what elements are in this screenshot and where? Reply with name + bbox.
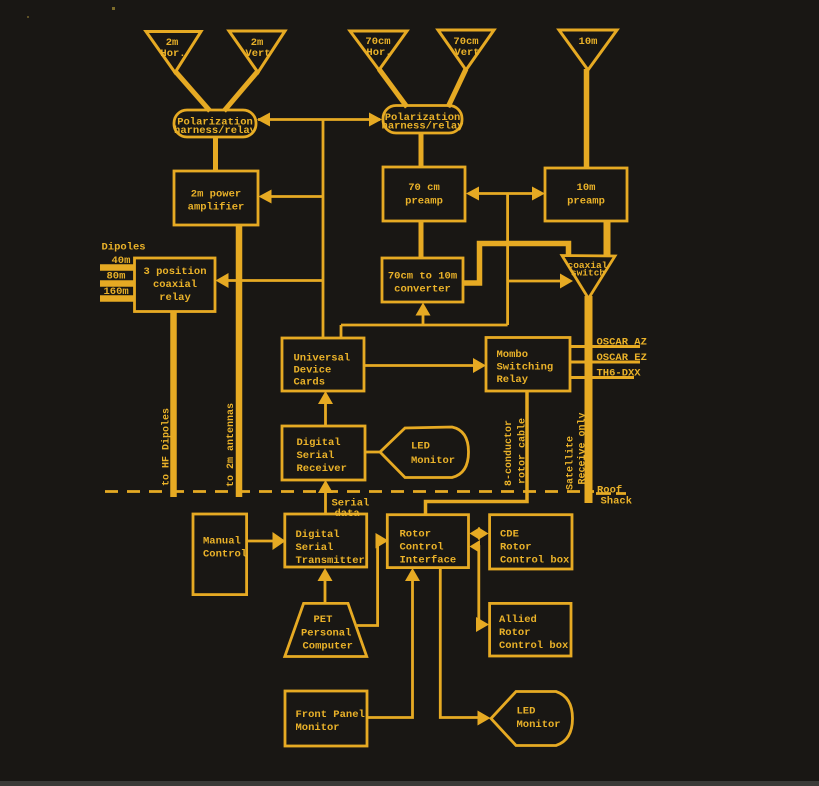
svg-text:preamp: preamp <box>405 196 443 208</box>
svg-text:Allied: Allied <box>499 614 537 626</box>
svg-text:Serial: Serial <box>296 542 334 554</box>
svg-text:Vert: Vert <box>454 47 479 59</box>
svg-text:10m: 10m <box>577 182 596 194</box>
svg-text:coaxial: coaxial <box>153 279 197 291</box>
svg-text:switch: switch <box>571 268 606 279</box>
svg-text:Digital: Digital <box>296 529 340 541</box>
svg-text:Manual: Manual <box>203 536 241 548</box>
svg-text:Hor.: Hor. <box>160 48 185 60</box>
svg-text:data: data <box>335 508 361 520</box>
svg-text:converter: converter <box>394 284 451 296</box>
svg-text:to HF Dipoles: to HF Dipoles <box>161 408 173 486</box>
svg-text:Front Panel: Front Panel <box>296 709 365 721</box>
svg-text:amplifier: amplifier <box>188 202 245 214</box>
svg-text:Device: Device <box>294 365 332 377</box>
svg-text:80m: 80m <box>107 271 126 283</box>
svg-text:Dipoles: Dipoles <box>102 242 146 254</box>
svg-text:preamp: preamp <box>567 196 605 208</box>
svg-text:Receive only: Receive only <box>577 412 589 484</box>
svg-text:Monitor: Monitor <box>517 719 561 731</box>
svg-text:relay: relay <box>159 292 191 304</box>
svg-text:Mombo: Mombo <box>497 349 529 361</box>
svg-text:Interface: Interface <box>400 555 457 567</box>
svg-text:Universal: Universal <box>294 353 351 365</box>
svg-text:Cards: Cards <box>294 377 326 389</box>
svg-text:OSCAR AZ: OSCAR AZ <box>597 337 647 349</box>
svg-text:harness/relay: harness/relay <box>382 121 465 133</box>
svg-text:Transmitter: Transmitter <box>296 555 365 567</box>
svg-text:Switching: Switching <box>497 362 554 374</box>
svg-text:Rotor: Rotor <box>500 542 532 554</box>
svg-text:Relay: Relay <box>497 374 529 386</box>
svg-text:Rotor: Rotor <box>499 627 531 639</box>
svg-text:Serial: Serial <box>297 450 335 462</box>
svg-text:Monitor: Monitor <box>411 455 455 467</box>
svg-text:Control: Control <box>203 549 247 561</box>
svg-text:2m power: 2m power <box>191 189 241 201</box>
svg-text:70 cm: 70 cm <box>408 182 440 194</box>
svg-text:LED: LED <box>411 441 430 453</box>
svg-text:Monitor: Monitor <box>296 722 340 734</box>
svg-text:Control: Control <box>400 542 444 554</box>
svg-text:Personal: Personal <box>301 628 351 640</box>
svg-text:Hor.: Hor. <box>366 47 391 59</box>
svg-text:CDE: CDE <box>500 529 519 541</box>
svg-text:3 position: 3 position <box>143 266 206 278</box>
svg-text:10m: 10m <box>579 36 598 48</box>
svg-text:8-conductor: 8-conductor <box>503 420 515 486</box>
svg-text:Receiver: Receiver <box>297 463 347 475</box>
svg-text:70cm to 10m: 70cm to 10m <box>388 271 457 283</box>
svg-text:Control box: Control box <box>499 640 569 652</box>
svg-text:to 2m antennas: to 2m antennas <box>226 403 237 487</box>
svg-text:Control box: Control box <box>500 555 570 567</box>
svg-text:Shack: Shack <box>601 496 633 508</box>
svg-text:TH6-DXX: TH6-DXX <box>597 368 642 380</box>
svg-text:harness/relay: harness/relay <box>174 125 257 137</box>
svg-text:Vert: Vert <box>245 48 270 60</box>
svg-text:Rotor: Rotor <box>400 529 432 541</box>
svg-text:160m: 160m <box>104 286 129 298</box>
svg-text:rotor cable: rotor cable <box>517 418 529 484</box>
svg-text:40m: 40m <box>112 255 131 267</box>
svg-text:Digital: Digital <box>297 437 341 449</box>
svg-text:LED: LED <box>517 706 536 718</box>
svg-text:PET: PET <box>314 614 333 626</box>
svg-text:Satellite: Satellite <box>565 436 577 490</box>
svg-text:Computer: Computer <box>303 641 353 653</box>
svg-text:OSCAR EZ: OSCAR EZ <box>597 352 647 364</box>
